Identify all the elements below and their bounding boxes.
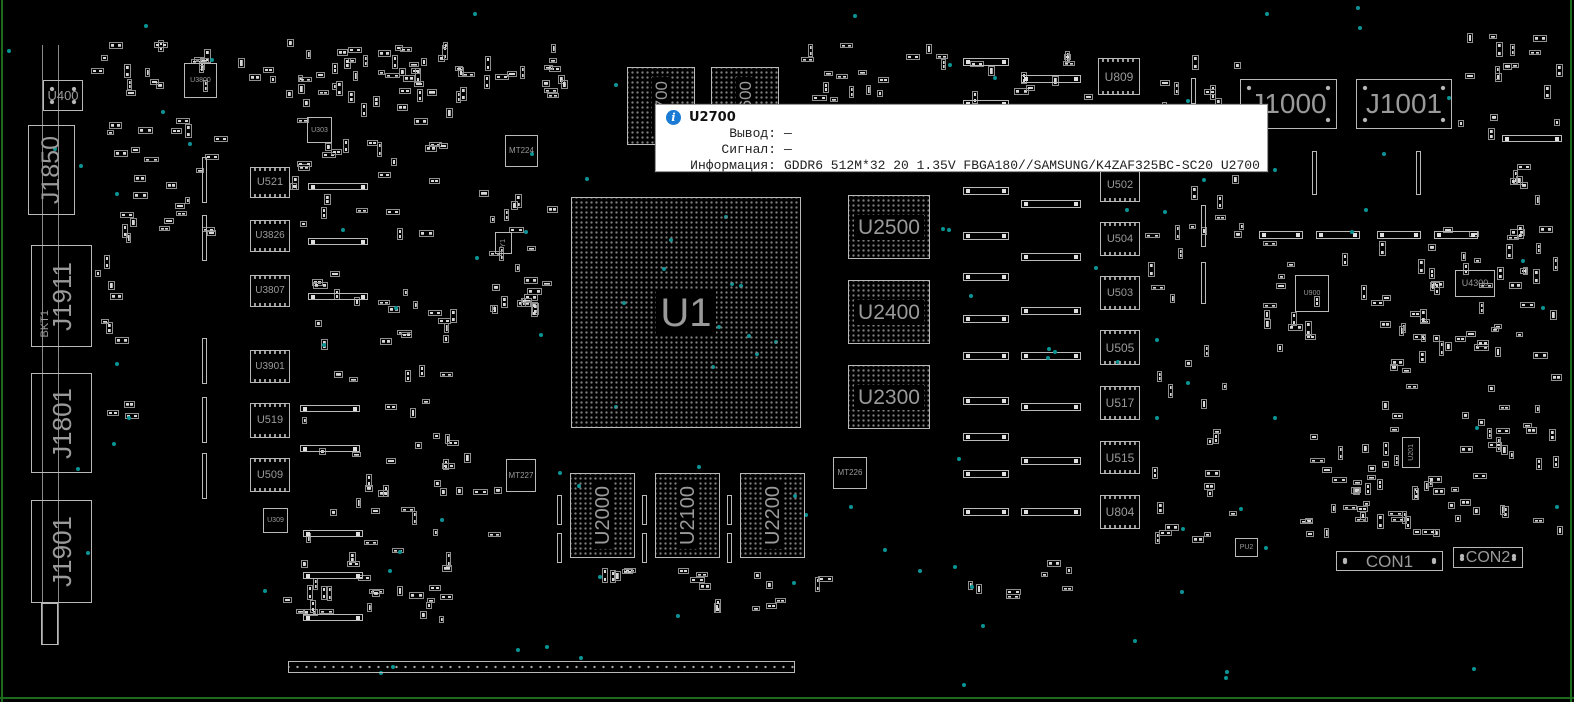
passive-component[interactable]: [1066, 567, 1072, 574]
passive-component[interactable]: [1544, 85, 1551, 99]
component-con2[interactable]: CON2: [1453, 547, 1523, 568]
passive-component[interactable]: [727, 495, 732, 525]
passive-component[interactable]: [380, 338, 392, 345]
passive-component[interactable]: [1388, 511, 1403, 516]
passive-component[interactable]: [175, 203, 185, 209]
passive-component[interactable]: [1021, 457, 1081, 465]
passive-component[interactable]: [1536, 458, 1542, 470]
passive-component[interactable]: [202, 215, 207, 261]
passive-component[interactable]: [303, 614, 363, 621]
passive-component[interactable]: [752, 606, 760, 611]
passive-component[interactable]: [1460, 446, 1473, 453]
passive-component[interactable]: [877, 90, 883, 97]
passive-component[interactable]: [1062, 586, 1073, 591]
passive-component[interactable]: [520, 66, 525, 79]
passive-component[interactable]: [1310, 458, 1325, 463]
passive-component[interactable]: [386, 209, 400, 215]
passive-component[interactable]: [348, 47, 362, 53]
component-u517[interactable]: U517: [1100, 386, 1140, 420]
passive-component[interactable]: [544, 88, 558, 93]
passive-component[interactable]: [1418, 259, 1425, 274]
passive-component[interactable]: [1357, 506, 1368, 512]
passive-component[interactable]: [1496, 42, 1503, 57]
passive-component[interactable]: [164, 218, 174, 224]
component-u2100[interactable]: U2100: [655, 473, 720, 558]
passive-component[interactable]: [610, 570, 616, 583]
passive-component[interactable]: [301, 560, 308, 568]
passive-component[interactable]: [1451, 487, 1459, 492]
passive-component[interactable]: [417, 89, 423, 102]
passive-component[interactable]: [171, 128, 182, 134]
passive-component[interactable]: [1310, 434, 1318, 440]
passive-component[interactable]: [420, 611, 427, 619]
passive-component[interactable]: [397, 228, 403, 240]
passive-component[interactable]: [1322, 467, 1332, 473]
passive-component[interactable]: [383, 485, 389, 497]
passive-component[interactable]: [1377, 514, 1384, 529]
passive-component[interactable]: [963, 433, 1009, 441]
component-u521[interactable]: U521: [250, 167, 290, 198]
passive-component[interactable]: [439, 143, 448, 149]
passive-component[interactable]: [1500, 505, 1505, 515]
component-u3800[interactable]: U3800: [184, 63, 217, 98]
passive-component[interactable]: [1332, 477, 1347, 483]
passive-component[interactable]: [1394, 455, 1399, 466]
passive-component[interactable]: [1509, 451, 1514, 459]
component-u2400[interactable]: U2400: [848, 280, 930, 344]
passive-component[interactable]: [1551, 374, 1562, 381]
passive-component[interactable]: [101, 55, 108, 61]
passive-component[interactable]: [1185, 360, 1192, 367]
passive-component[interactable]: [110, 293, 123, 300]
passive-component[interactable]: [214, 136, 228, 142]
passive-component[interactable]: [361, 103, 367, 117]
passive-component[interactable]: [270, 76, 276, 83]
passive-component[interactable]: [349, 552, 356, 563]
passive-component[interactable]: [414, 81, 424, 87]
component-u519[interactable]: U519: [250, 403, 290, 438]
passive-component[interactable]: [544, 65, 553, 70]
passive-component[interactable]: [1157, 371, 1162, 382]
passive-component[interactable]: [124, 401, 135, 408]
passive-component[interactable]: [1213, 433, 1219, 444]
passive-component[interactable]: [1507, 235, 1519, 240]
passive-component[interactable]: [429, 178, 440, 184]
passive-component[interactable]: [316, 72, 325, 78]
passive-component[interactable]: [1496, 428, 1510, 434]
passive-component[interactable]: [1533, 269, 1540, 284]
passive-component[interactable]: [403, 289, 408, 296]
passive-component[interactable]: [464, 453, 471, 463]
passive-component[interactable]: [399, 88, 411, 94]
passive-component[interactable]: [1353, 480, 1362, 485]
passive-component[interactable]: [766, 603, 777, 609]
component-u3826[interactable]: U3826: [250, 220, 290, 252]
passive-component[interactable]: [1277, 344, 1283, 352]
passive-component[interactable]: [298, 84, 305, 94]
passive-component[interactable]: [385, 73, 400, 78]
passive-component[interactable]: [1478, 419, 1485, 426]
passive-component[interactable]: [1429, 268, 1435, 279]
passive-component[interactable]: [1148, 262, 1155, 277]
passive-component[interactable]: [547, 93, 559, 98]
passive-component[interactable]: [303, 530, 363, 537]
passive-component[interactable]: [1390, 364, 1398, 371]
passive-component[interactable]: [126, 233, 131, 243]
passive-component[interactable]: [371, 508, 380, 514]
passive-component[interactable]: [1477, 340, 1489, 347]
passive-component[interactable]: [176, 211, 187, 216]
passive-component[interactable]: [1491, 327, 1499, 332]
passive-component[interactable]: [343, 139, 349, 153]
passive-component[interactable]: [1516, 332, 1523, 337]
passive-component[interactable]: [202, 157, 207, 203]
passive-component[interactable]: [419, 365, 425, 377]
component-u201[interactable]: U201: [1402, 437, 1420, 468]
passive-component[interactable]: [1021, 508, 1081, 516]
passive-component[interactable]: [446, 108, 453, 118]
passive-component[interactable]: [1204, 483, 1215, 490]
passive-component[interactable]: [1520, 302, 1535, 308]
passive-component[interactable]: [1361, 285, 1367, 300]
passive-component[interactable]: [321, 586, 327, 600]
passive-component[interactable]: [150, 79, 159, 85]
passive-component[interactable]: [336, 81, 343, 96]
component-y1[interactable]: Y1: [495, 232, 512, 254]
passive-component[interactable]: [1192, 536, 1204, 543]
passive-component[interactable]: [602, 568, 608, 583]
passive-component[interactable]: [1354, 487, 1361, 493]
passive-component[interactable]: [313, 282, 328, 289]
passive-component[interactable]: [422, 399, 430, 404]
passive-component[interactable]: [988, 66, 995, 76]
passive-component[interactable]: [1392, 413, 1403, 419]
passive-component[interactable]: [1495, 347, 1501, 357]
passive-component[interactable]: [1460, 499, 1471, 506]
passive-component[interactable]: [1191, 78, 1196, 104]
passive-component[interactable]: [202, 453, 207, 499]
passive-component[interactable]: [202, 397, 207, 443]
passive-component[interactable]: [166, 182, 177, 189]
passive-component[interactable]: [249, 74, 261, 81]
passive-component[interactable]: [426, 602, 432, 609]
passive-component[interactable]: [1501, 445, 1508, 455]
passive-component[interactable]: [1462, 412, 1469, 419]
passive-component[interactable]: [963, 508, 1009, 516]
passive-component[interactable]: [1160, 80, 1170, 86]
passive-component[interactable]: [412, 511, 417, 525]
component-u515[interactable]: U515: [1100, 441, 1140, 474]
passive-component[interactable]: [1204, 89, 1216, 95]
component-pu2[interactable]: PU2: [1235, 538, 1258, 557]
passive-component[interactable]: [976, 584, 982, 594]
passive-component[interactable]: [415, 442, 422, 449]
passive-component[interactable]: [428, 310, 442, 316]
passive-component[interactable]: [1402, 368, 1411, 373]
passive-component[interactable]: [1362, 444, 1369, 453]
component-u4300[interactable]: U4300: [1455, 270, 1495, 297]
passive-component[interactable]: [1063, 61, 1075, 66]
passive-component[interactable]: [699, 583, 711, 590]
passive-component[interactable]: [524, 277, 538, 284]
passive-component[interactable]: [124, 64, 131, 78]
component-con1[interactable]: CON1: [1336, 551, 1443, 571]
passive-component[interactable]: [1263, 241, 1277, 246]
passive-component[interactable]: [1145, 233, 1160, 238]
passive-component[interactable]: [348, 91, 355, 103]
component-mt224[interactable]: MT224: [505, 135, 538, 167]
passive-component[interactable]: [450, 309, 457, 323]
passive-component[interactable]: [440, 488, 447, 496]
passive-component[interactable]: [414, 118, 428, 125]
passive-component[interactable]: [1331, 504, 1336, 513]
component-u2300[interactable]: U2300: [848, 365, 930, 429]
passive-component[interactable]: [504, 209, 509, 221]
passive-component[interactable]: [1488, 128, 1495, 140]
passive-component[interactable]: [926, 44, 932, 54]
passive-component[interactable]: [321, 207, 327, 219]
passive-component[interactable]: [1259, 231, 1303, 239]
passive-component[interactable]: [1473, 507, 1480, 515]
passive-component[interactable]: [1533, 352, 1548, 359]
passive-component[interactable]: [131, 147, 140, 153]
passive-component[interactable]: [1383, 442, 1389, 456]
passive-component[interactable]: [425, 145, 437, 152]
passive-component[interactable]: [308, 293, 368, 300]
passive-component[interactable]: [108, 281, 115, 290]
component-u2500[interactable]: U2500: [848, 195, 930, 259]
passive-component[interactable]: [963, 397, 1009, 405]
component-u400[interactable]: U400: [43, 80, 83, 111]
passive-component[interactable]: [1448, 502, 1455, 509]
passive-component[interactable]: [551, 44, 556, 53]
passive-component[interactable]: [1380, 321, 1391, 328]
passive-component[interactable]: [1422, 529, 1436, 535]
passive-component[interactable]: [1204, 345, 1209, 357]
passive-component[interactable]: [1201, 205, 1206, 247]
passive-component[interactable]: [878, 77, 889, 83]
passive-component[interactable]: [399, 68, 406, 76]
passive-component[interactable]: [766, 581, 773, 589]
passive-component[interactable]: [297, 161, 312, 167]
passive-component[interactable]: [444, 323, 449, 333]
passive-component[interactable]: [1556, 64, 1563, 77]
component-mt227[interactable]: MT227: [506, 459, 536, 492]
passive-component[interactable]: [866, 85, 871, 95]
passive-component[interactable]: [334, 371, 343, 378]
passive-component[interactable]: [133, 192, 148, 199]
passive-component[interactable]: [801, 57, 814, 62]
passive-component[interactable]: [1557, 526, 1563, 535]
passive-component[interactable]: [130, 218, 137, 227]
passive-component[interactable]: [292, 176, 299, 190]
passive-component[interactable]: [413, 301, 418, 309]
passive-component[interactable]: [1414, 488, 1419, 500]
passive-component[interactable]: [1466, 331, 1476, 337]
passive-component[interactable]: [840, 43, 853, 48]
passive-component[interactable]: [1021, 307, 1081, 315]
passive-component[interactable]: [324, 194, 331, 205]
passive-component[interactable]: [824, 71, 833, 76]
passive-component[interactable]: [1229, 511, 1237, 516]
passive-component[interactable]: [443, 42, 448, 49]
component-u809[interactable]: U809: [1098, 58, 1140, 95]
passive-component[interactable]: [754, 572, 761, 579]
passive-component[interactable]: [715, 599, 721, 613]
passive-component[interactable]: [1487, 428, 1492, 439]
passive-component[interactable]: [1084, 94, 1093, 100]
passive-component[interactable]: [397, 586, 403, 596]
passive-component[interactable]: [409, 62, 419, 67]
passive-component[interactable]: [332, 63, 338, 74]
passive-component[interactable]: [1367, 475, 1376, 480]
passive-component[interactable]: [442, 463, 455, 469]
passive-component[interactable]: [549, 58, 557, 63]
passive-component[interactable]: [1306, 531, 1314, 537]
passive-component[interactable]: [91, 68, 104, 74]
passive-component[interactable]: [1529, 50, 1541, 55]
passive-component[interactable]: [1416, 151, 1421, 195]
component-u505[interactable]: U505: [1100, 330, 1140, 365]
passive-component[interactable]: [1170, 294, 1175, 303]
passive-component[interactable]: [1533, 35, 1547, 42]
passive-component[interactable]: [963, 187, 1009, 195]
passive-component[interactable]: [696, 572, 708, 577]
passive-component[interactable]: [356, 208, 368, 213]
passive-component[interactable]: [1445, 342, 1452, 351]
passive-component[interactable]: [107, 130, 114, 135]
passive-component[interactable]: [1021, 200, 1081, 208]
passive-component[interactable]: [1191, 186, 1198, 200]
passive-component[interactable]: [303, 572, 363, 579]
passive-component[interactable]: [1239, 223, 1244, 230]
passive-component[interactable]: [1263, 303, 1277, 308]
passive-component[interactable]: [1278, 274, 1285, 279]
passive-component[interactable]: [1264, 319, 1271, 329]
passive-component[interactable]: [1511, 63, 1519, 68]
passive-component[interactable]: [1419, 351, 1426, 363]
passive-component[interactable]: [446, 552, 451, 567]
passive-component[interactable]: [286, 90, 293, 98]
passive-component[interactable]: [727, 533, 732, 563]
passive-component[interactable]: [460, 87, 467, 101]
passive-component[interactable]: [1428, 244, 1436, 251]
passive-component[interactable]: [378, 50, 391, 57]
passive-component[interactable]: [313, 578, 318, 590]
passive-component[interactable]: [1365, 483, 1371, 495]
passive-component[interactable]: [159, 226, 170, 231]
passive-component[interactable]: [440, 372, 453, 377]
passive-component[interactable]: [1539, 226, 1553, 233]
passive-component[interactable]: [1510, 178, 1517, 185]
passive-component[interactable]: [501, 296, 508, 308]
passive-component[interactable]: [126, 90, 136, 96]
passive-component[interactable]: [849, 86, 854, 98]
passive-component[interactable]: [1343, 505, 1357, 510]
passive-component[interactable]: [527, 288, 542, 295]
passive-component[interactable]: [1554, 119, 1560, 126]
passive-component[interactable]: [1433, 488, 1445, 495]
passive-component[interactable]: [176, 118, 190, 124]
passive-component[interactable]: [405, 370, 411, 382]
passive-component[interactable]: [1151, 285, 1165, 290]
passive-component[interactable]: [492, 284, 500, 291]
passive-component[interactable]: [823, 82, 829, 93]
passive-component[interactable]: [385, 404, 397, 410]
passive-component[interactable]: [419, 230, 434, 237]
passive-component[interactable]: [391, 158, 397, 166]
passive-component[interactable]: [386, 458, 396, 464]
passive-component[interactable]: [678, 568, 689, 574]
passive-component[interactable]: [109, 42, 123, 49]
passive-component[interactable]: [1510, 44, 1515, 56]
passive-component[interactable]: [1021, 352, 1081, 360]
component-u309[interactable]: U309: [263, 508, 288, 533]
passive-component[interactable]: [1455, 515, 1461, 522]
passive-component[interactable]: [238, 58, 245, 68]
passive-component[interactable]: [308, 183, 368, 190]
passive-component[interactable]: [1234, 231, 1242, 238]
passive-component[interactable]: [557, 533, 562, 563]
passive-component[interactable]: [185, 124, 192, 138]
passive-component[interactable]: [1342, 253, 1348, 266]
component-u2200[interactable]: U2200: [740, 473, 805, 558]
passive-component[interactable]: [1520, 182, 1528, 189]
passive-component[interactable]: [1379, 241, 1386, 256]
component-u804[interactable]: U804: [1100, 495, 1140, 529]
passive-component[interactable]: [421, 58, 427, 66]
passive-component[interactable]: [378, 172, 391, 178]
passive-component[interactable]: [1535, 405, 1540, 413]
component-u503[interactable]: U503: [1100, 276, 1140, 310]
passive-component[interactable]: [1192, 55, 1199, 70]
passive-component[interactable]: [1553, 257, 1558, 271]
passive-component[interactable]: [306, 50, 311, 59]
passive-component[interactable]: [349, 377, 358, 382]
passive-component[interactable]: [1549, 429, 1556, 441]
component-u3807[interactable]: U3807: [250, 275, 290, 307]
passive-component[interactable]: [427, 89, 437, 96]
passive-component[interactable]: [433, 529, 438, 536]
passive-component[interactable]: [963, 352, 1009, 360]
passive-component[interactable]: [963, 273, 1009, 281]
passive-component[interactable]: [1474, 258, 1481, 263]
passive-component[interactable]: [134, 175, 146, 182]
passive-component[interactable]: [327, 586, 332, 601]
passive-component[interactable]: [1502, 135, 1562, 142]
passive-component[interactable]: [531, 302, 538, 317]
passive-component[interactable]: [1204, 532, 1211, 537]
passive-component[interactable]: [145, 68, 150, 77]
passive-component[interactable]: [400, 47, 412, 52]
passive-component[interactable]: [1428, 476, 1442, 483]
component-j1850[interactable]: J1850: [28, 125, 75, 215]
passive-component[interactable]: [963, 315, 1009, 323]
passive-component[interactable]: [410, 408, 416, 418]
component-mt226[interactable]: MT226: [833, 457, 867, 489]
passive-component[interactable]: [484, 75, 490, 89]
passive-component[interactable]: [1526, 427, 1537, 434]
passive-component[interactable]: [101, 319, 109, 324]
passive-component[interactable]: [1458, 120, 1464, 127]
passive-component[interactable]: [1434, 231, 1478, 239]
passive-component[interactable]: [1215, 215, 1226, 220]
passive-component[interactable]: [1488, 442, 1502, 448]
passive-component[interactable]: [455, 66, 463, 71]
passive-component[interactable]: [1234, 62, 1241, 69]
passive-component[interactable]: [1324, 528, 1329, 538]
passive-component[interactable]: [1368, 465, 1376, 472]
